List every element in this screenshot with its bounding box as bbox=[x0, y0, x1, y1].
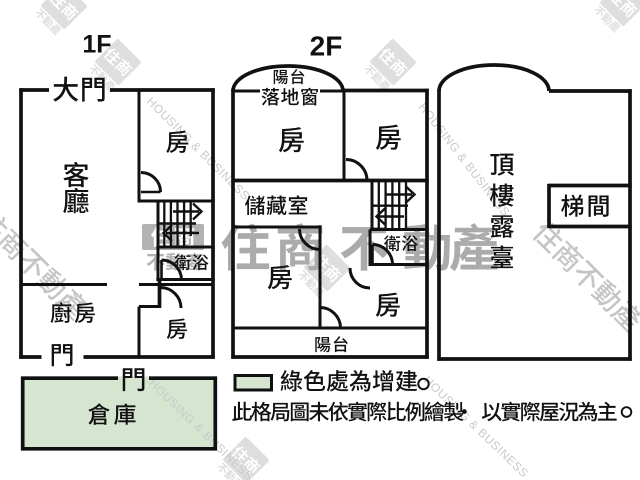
svg-text:2F: 2F bbox=[310, 31, 343, 62]
svg-text:1F: 1F bbox=[82, 31, 111, 59]
